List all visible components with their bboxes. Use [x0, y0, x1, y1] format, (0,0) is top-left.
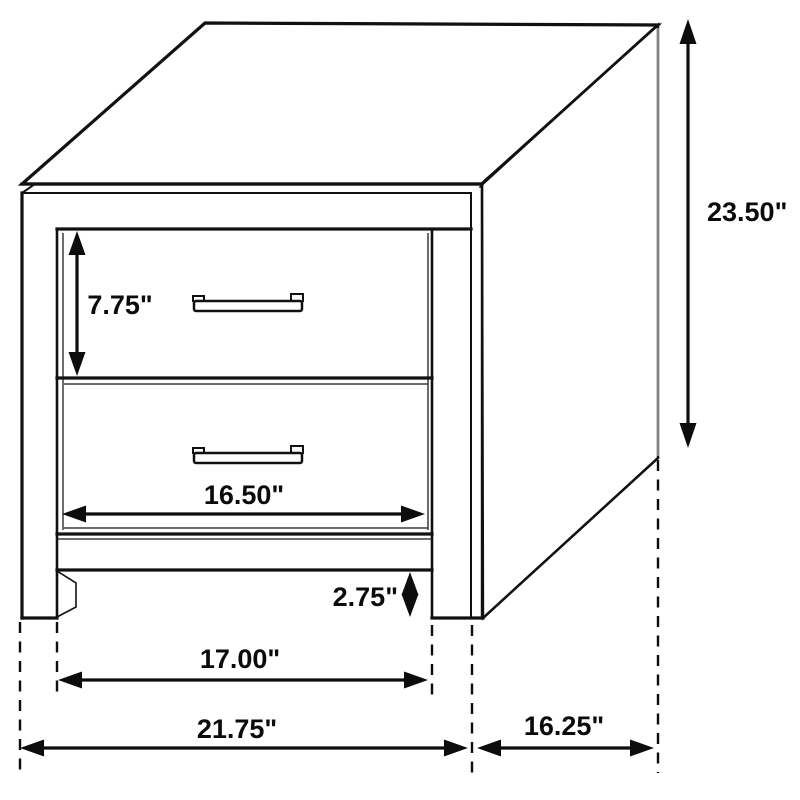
- top-drawer-handle: [193, 294, 303, 311]
- base-clearance-label: 2.75": [333, 582, 398, 612]
- nightstand-dimension-diagram: 23.50" 7.75" 16.50" 2.75" 17.00" 21.75": [0, 0, 800, 800]
- handle-bar: [194, 453, 302, 463]
- dimension-overall-height: 23.50": [680, 19, 788, 448]
- arrowhead-right: [630, 740, 654, 757]
- arrowhead-down: [69, 352, 86, 376]
- top-drawer-height-label: 7.75": [87, 290, 152, 320]
- cabinet-drawing: [22, 23, 658, 618]
- dimension-drawer-width: 16.50": [62, 480, 425, 523]
- handle-bar: [194, 301, 302, 311]
- arrowhead-up: [69, 231, 86, 255]
- arrowhead-right: [444, 740, 468, 757]
- dimension-overall-width: 21.75": [20, 714, 468, 757]
- arrowhead-down: [680, 423, 697, 448]
- arrowhead-left: [58, 672, 82, 689]
- arrowhead-up: [402, 572, 419, 595]
- bottom-drawer-handle: [193, 446, 303, 463]
- drawer-width-label: 16.50": [204, 480, 284, 510]
- dimension-inner-leg-span: 17.00": [58, 644, 428, 689]
- arrowhead-down: [402, 594, 419, 617]
- left-leg-side-face: [57, 571, 76, 617]
- arrowhead-left: [20, 740, 44, 757]
- arrowhead-right: [401, 506, 425, 523]
- dimension-side-depth: 16.25": [477, 711, 654, 757]
- arrowhead-left: [62, 506, 86, 523]
- overall-width-label: 21.75": [197, 714, 277, 744]
- dimension-base-clearance: 2.75": [333, 572, 419, 617]
- dimension-top-drawer-height: 7.75": [69, 231, 153, 376]
- arrowhead-left: [477, 740, 501, 757]
- dimension-diagram-canvas: 23.50" 7.75" 16.50" 2.75" 17.00" 21.75": [0, 0, 800, 800]
- arrowhead-right: [404, 672, 428, 689]
- side-depth-label: 16.25": [524, 711, 604, 741]
- inner-leg-span-label: 17.00": [200, 644, 280, 674]
- arrowhead-up: [680, 19, 697, 44]
- overall-height-label: 23.50": [707, 197, 787, 227]
